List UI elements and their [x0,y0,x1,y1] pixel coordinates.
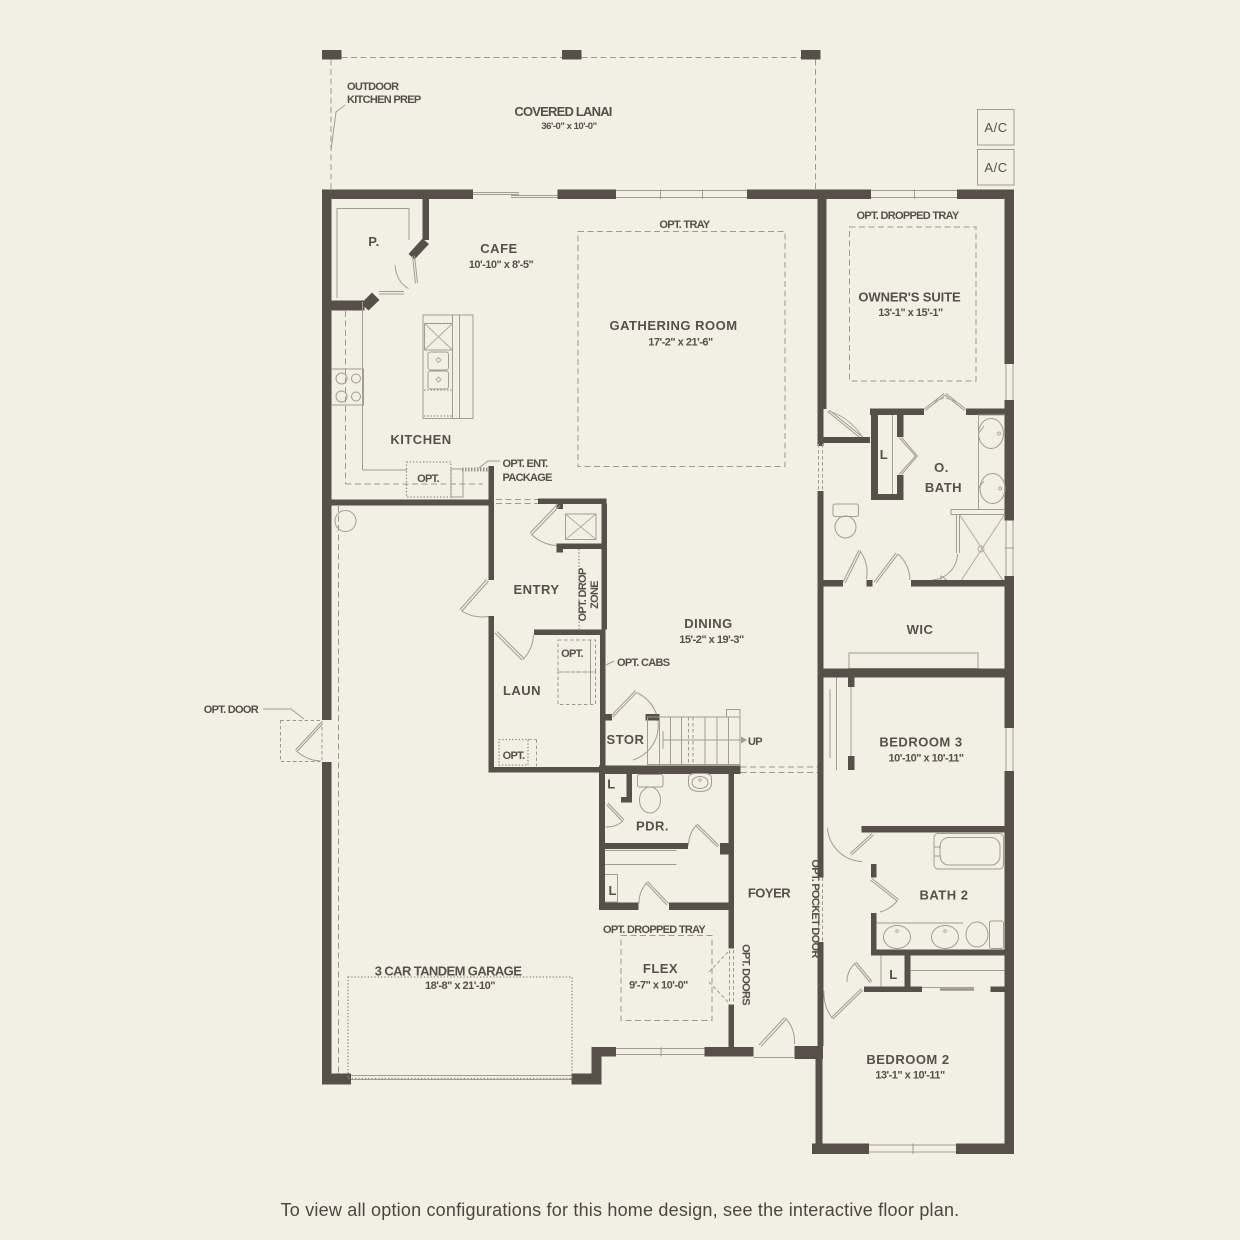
svg-text:3 CAR TANDEM GARAGE: 3 CAR TANDEM GARAGE [375,964,522,979]
svg-text:OPT.: OPT. [417,473,439,485]
svg-text:CAFE: CAFE [480,241,517,256]
svg-text:L: L [880,447,888,462]
svg-text:13'-1" x 10'-11": 13'-1" x 10'-11" [875,1070,945,1082]
svg-text:LAUN: LAUN [503,683,541,698]
svg-text:OPT. DOOR: OPT. DOOR [204,704,259,716]
svg-text:L: L [609,883,617,898]
svg-text:9'-7" x 10'-0": 9'-7" x 10'-0" [629,980,688,992]
svg-text:A/C: A/C [984,120,1007,135]
svg-text:COVERED LANAI: COVERED LANAI [514,104,611,119]
svg-text:13'-1" x 15'-1": 13'-1" x 15'-1" [878,307,943,319]
svg-text:OPT. POCKET DOOR: OPT. POCKET DOOR [809,859,821,958]
svg-text:PACKAGE: PACKAGE [503,472,553,484]
svg-text:A/C: A/C [984,160,1007,175]
svg-text:FLEX: FLEX [643,961,678,976]
svg-text:PDR.: PDR. [636,819,669,834]
svg-text:OPT.: OPT. [503,750,525,762]
svg-text:BEDROOM 2: BEDROOM 2 [866,1052,949,1067]
svg-text:OPT. CABS: OPT. CABS [617,657,670,669]
svg-text:OPT. TRAY: OPT. TRAY [659,219,711,231]
svg-text:DINING: DINING [684,616,733,631]
svg-text:15'-2" x 19'-3": 15'-2" x 19'-3" [679,634,744,646]
svg-text:P.: P. [368,234,380,249]
svg-text:OPT. DOORS: OPT. DOORS [740,944,752,1005]
svg-text:OPT. ENT.: OPT. ENT. [503,458,549,470]
svg-text:10'-10" x 8'-5": 10'-10" x 8'-5" [469,259,534,271]
svg-text:UP: UP [748,736,762,748]
svg-text:L: L [607,777,615,792]
svg-text:OPT. DROPPED TRAY: OPT. DROPPED TRAY [603,924,706,936]
svg-text:GATHERING ROOM: GATHERING ROOM [609,318,737,333]
svg-text:36'-0" x 10'-0": 36'-0" x 10'-0" [541,121,596,132]
svg-text:FOYER: FOYER [748,886,791,901]
svg-text:KITCHEN PREP: KITCHEN PREP [347,94,421,106]
svg-text:L: L [889,967,897,982]
svg-text:OPT. DROPPED TRAY: OPT. DROPPED TRAY [857,210,960,222]
svg-text:OPT.: OPT. [561,648,583,660]
svg-text:STOR: STOR [607,732,645,747]
svg-text:To view all option configurati: To view all option configurations for th… [281,1200,960,1220]
svg-text:BEDROOM 3: BEDROOM 3 [879,735,962,750]
svg-text:KITCHEN: KITCHEN [390,432,451,447]
svg-text:WIC: WIC [907,622,934,637]
svg-text:OWNER'S SUITE: OWNER'S SUITE [858,290,961,305]
svg-text:ENTRY: ENTRY [513,582,559,597]
svg-text:10'-10" x 10'-11": 10'-10" x 10'-11" [888,753,963,765]
svg-text:BATH 2: BATH 2 [920,888,969,903]
svg-text:O.: O. [934,460,949,475]
svg-text:18'-8" x 21'-10": 18'-8" x 21'-10" [425,980,495,992]
svg-text:BATH: BATH [925,480,962,495]
svg-text:OUTDOOR: OUTDOOR [347,81,399,93]
svg-text:17'-2" x 21'-6": 17'-2" x 21'-6" [648,337,713,349]
svg-text:OPT. DROP: OPT. DROP [577,568,589,621]
svg-text:ZONE: ZONE [589,581,601,609]
